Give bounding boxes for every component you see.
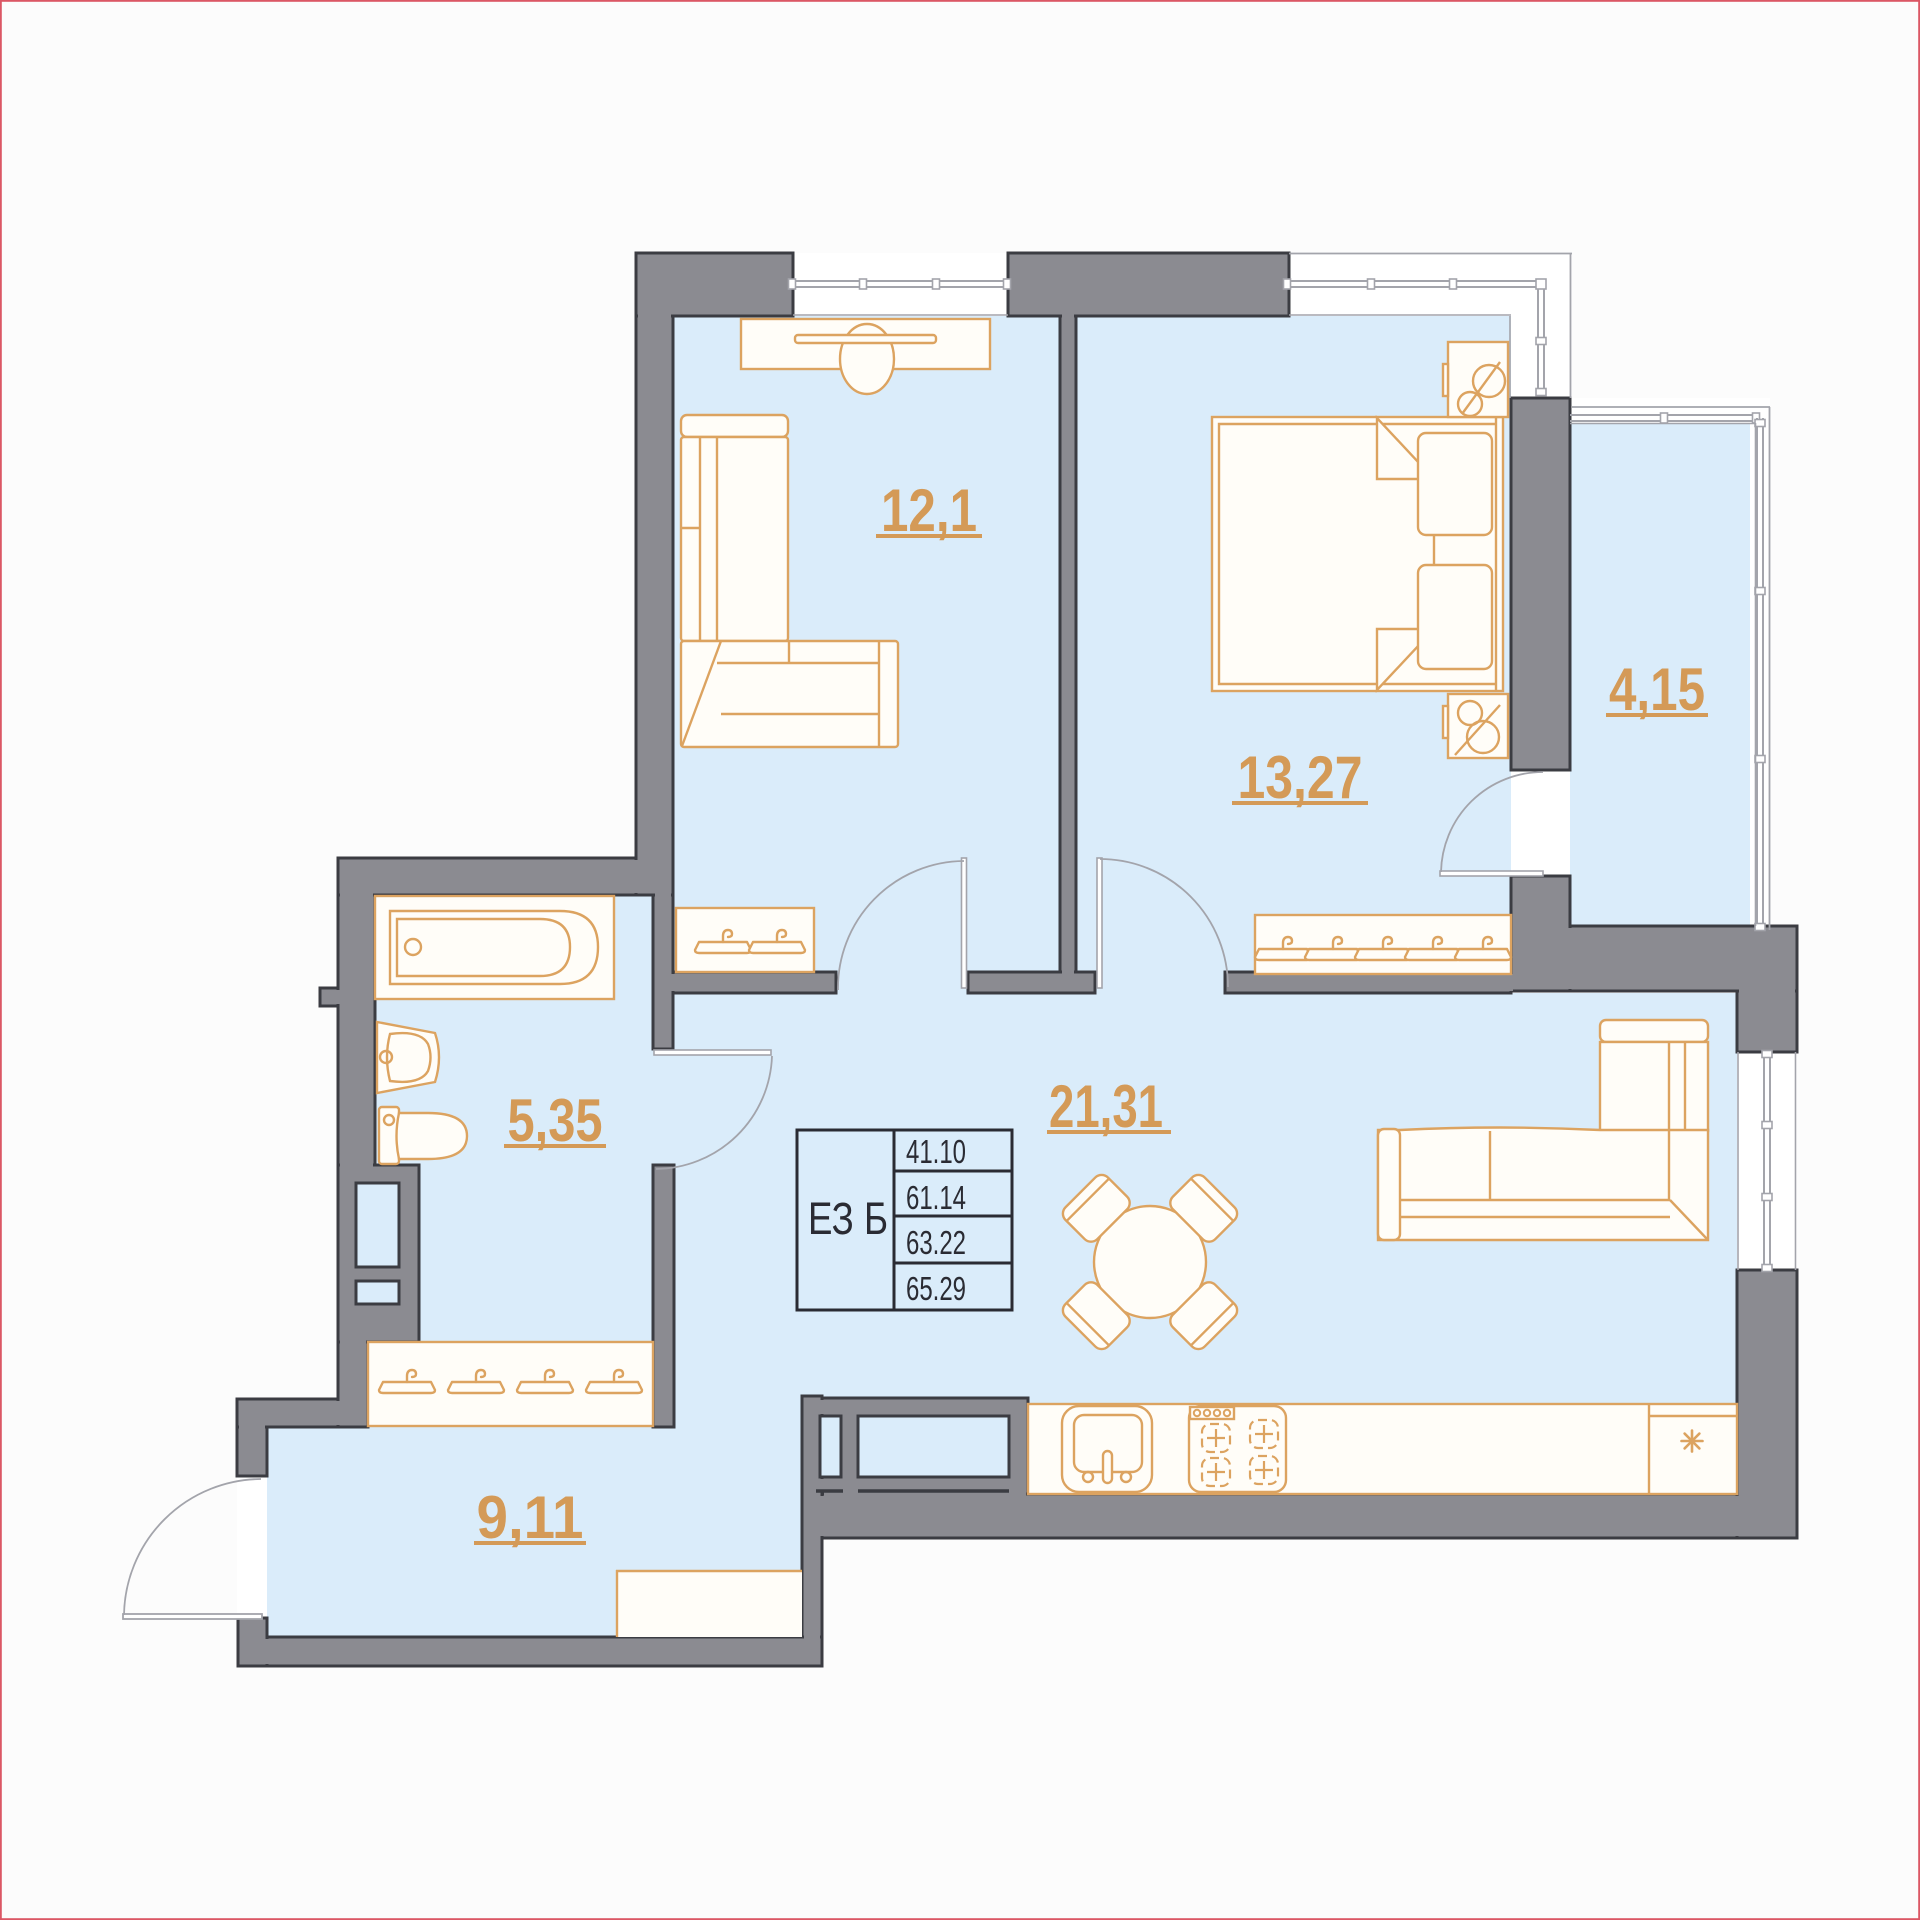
svg-text:ЕЗ Б: ЕЗ Б xyxy=(808,1193,888,1244)
svg-text:63.22: 63.22 xyxy=(906,1224,966,1261)
svg-text:65.29: 65.29 xyxy=(906,1270,966,1307)
svg-text:13,27: 13,27 xyxy=(1238,744,1363,811)
svg-text:5,35: 5,35 xyxy=(508,1087,603,1154)
svg-text:4,15: 4,15 xyxy=(1609,656,1705,723)
svg-text:21,31: 21,31 xyxy=(1049,1073,1163,1140)
svg-text:12,1: 12,1 xyxy=(881,477,977,544)
svg-text:41.10: 41.10 xyxy=(906,1133,966,1170)
svg-text:61.14: 61.14 xyxy=(906,1179,966,1216)
svg-text:9,11: 9,11 xyxy=(477,1484,584,1551)
